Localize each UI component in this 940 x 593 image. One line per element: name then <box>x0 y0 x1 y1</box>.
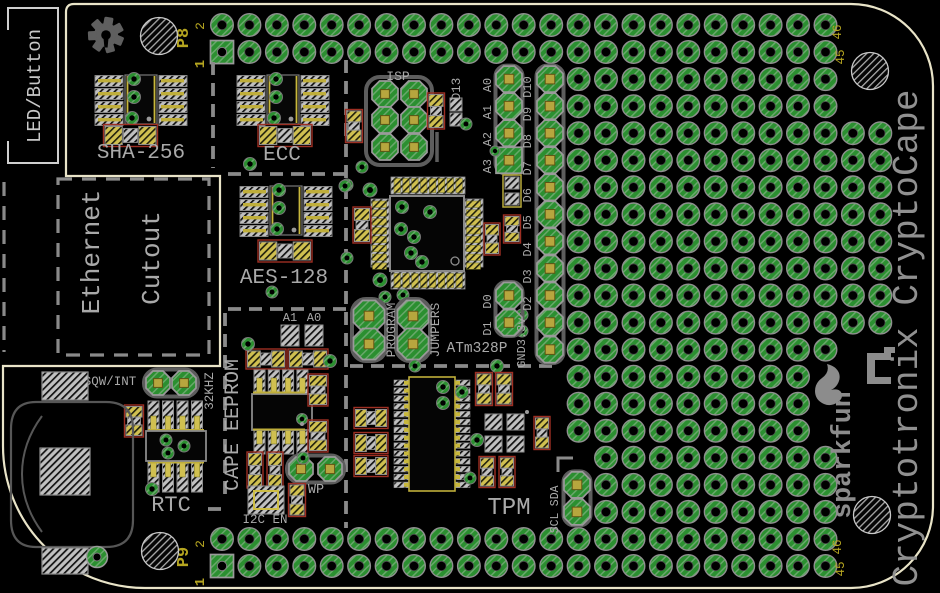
svg-text:Cryptotronix CryptoCape: Cryptotronix CryptoCape <box>887 90 928 587</box>
svg-text:D7: D7 <box>521 161 535 175</box>
svg-text:46: 46 <box>831 24 845 39</box>
svg-text:1: 1 <box>193 60 209 68</box>
svg-text:D0: D0 <box>481 294 495 308</box>
svg-text:RTC: RTC <box>151 493 191 518</box>
svg-text:D8: D8 <box>521 134 535 148</box>
svg-text:D2: D2 <box>521 296 535 310</box>
svg-text:LED/Button: LED/Button <box>24 29 46 143</box>
svg-text:A2: A2 <box>481 132 495 146</box>
svg-text:I2C EN: I2C EN <box>242 513 287 527</box>
svg-text:D4: D4 <box>521 242 535 256</box>
svg-text:SCL: SCL <box>549 512 562 533</box>
svg-text:D1: D1 <box>481 321 495 335</box>
svg-text:PROGRAM: PROGRAM <box>384 303 399 358</box>
svg-text:sparkfun: sparkfun <box>828 391 858 518</box>
svg-text:45: 45 <box>834 49 848 64</box>
svg-text:Ethernet: Ethernet <box>77 190 107 315</box>
svg-text:ISP: ISP <box>386 69 410 84</box>
svg-text:45: 45 <box>834 561 848 576</box>
svg-text:D10: D10 <box>521 76 535 98</box>
svg-text:SQW/INT: SQW/INT <box>84 375 137 389</box>
svg-text:A1: A1 <box>481 105 495 119</box>
svg-text:A0: A0 <box>307 311 321 325</box>
svg-text:2: 2 <box>193 540 208 548</box>
svg-text:ATm328P: ATm328P <box>447 341 508 357</box>
svg-text:1: 1 <box>193 578 209 586</box>
svg-text:A3: A3 <box>481 159 495 173</box>
svg-text:D6: D6 <box>521 188 535 202</box>
svg-text:WP: WP <box>308 483 324 498</box>
svg-text:SHA-256: SHA-256 <box>97 142 185 165</box>
svg-text:D3: D3 <box>521 269 535 283</box>
svg-text:2: 2 <box>193 22 208 30</box>
svg-text:ECC: ECC <box>263 144 301 167</box>
svg-text:SDA: SDA <box>549 485 562 506</box>
svg-text:JUMPERS: JUMPERS <box>428 302 443 357</box>
svg-text:D5: D5 <box>521 215 535 229</box>
svg-text:A0: A0 <box>481 78 495 92</box>
svg-text:32KHZ: 32KHZ <box>203 372 217 410</box>
svg-text:CAPE EEPROM: CAPE EEPROM <box>222 359 245 491</box>
svg-text:46: 46 <box>831 539 845 554</box>
svg-text:D9: D9 <box>521 107 535 121</box>
svg-text:Cutout: Cutout <box>137 211 167 305</box>
svg-text:A1: A1 <box>283 311 297 325</box>
svg-text:TPM: TPM <box>487 495 530 522</box>
svg-text:GND3.3v: GND3.3v <box>515 317 529 367</box>
svg-text:D13: D13 <box>450 78 464 101</box>
svg-text:AES-128: AES-128 <box>240 267 328 290</box>
